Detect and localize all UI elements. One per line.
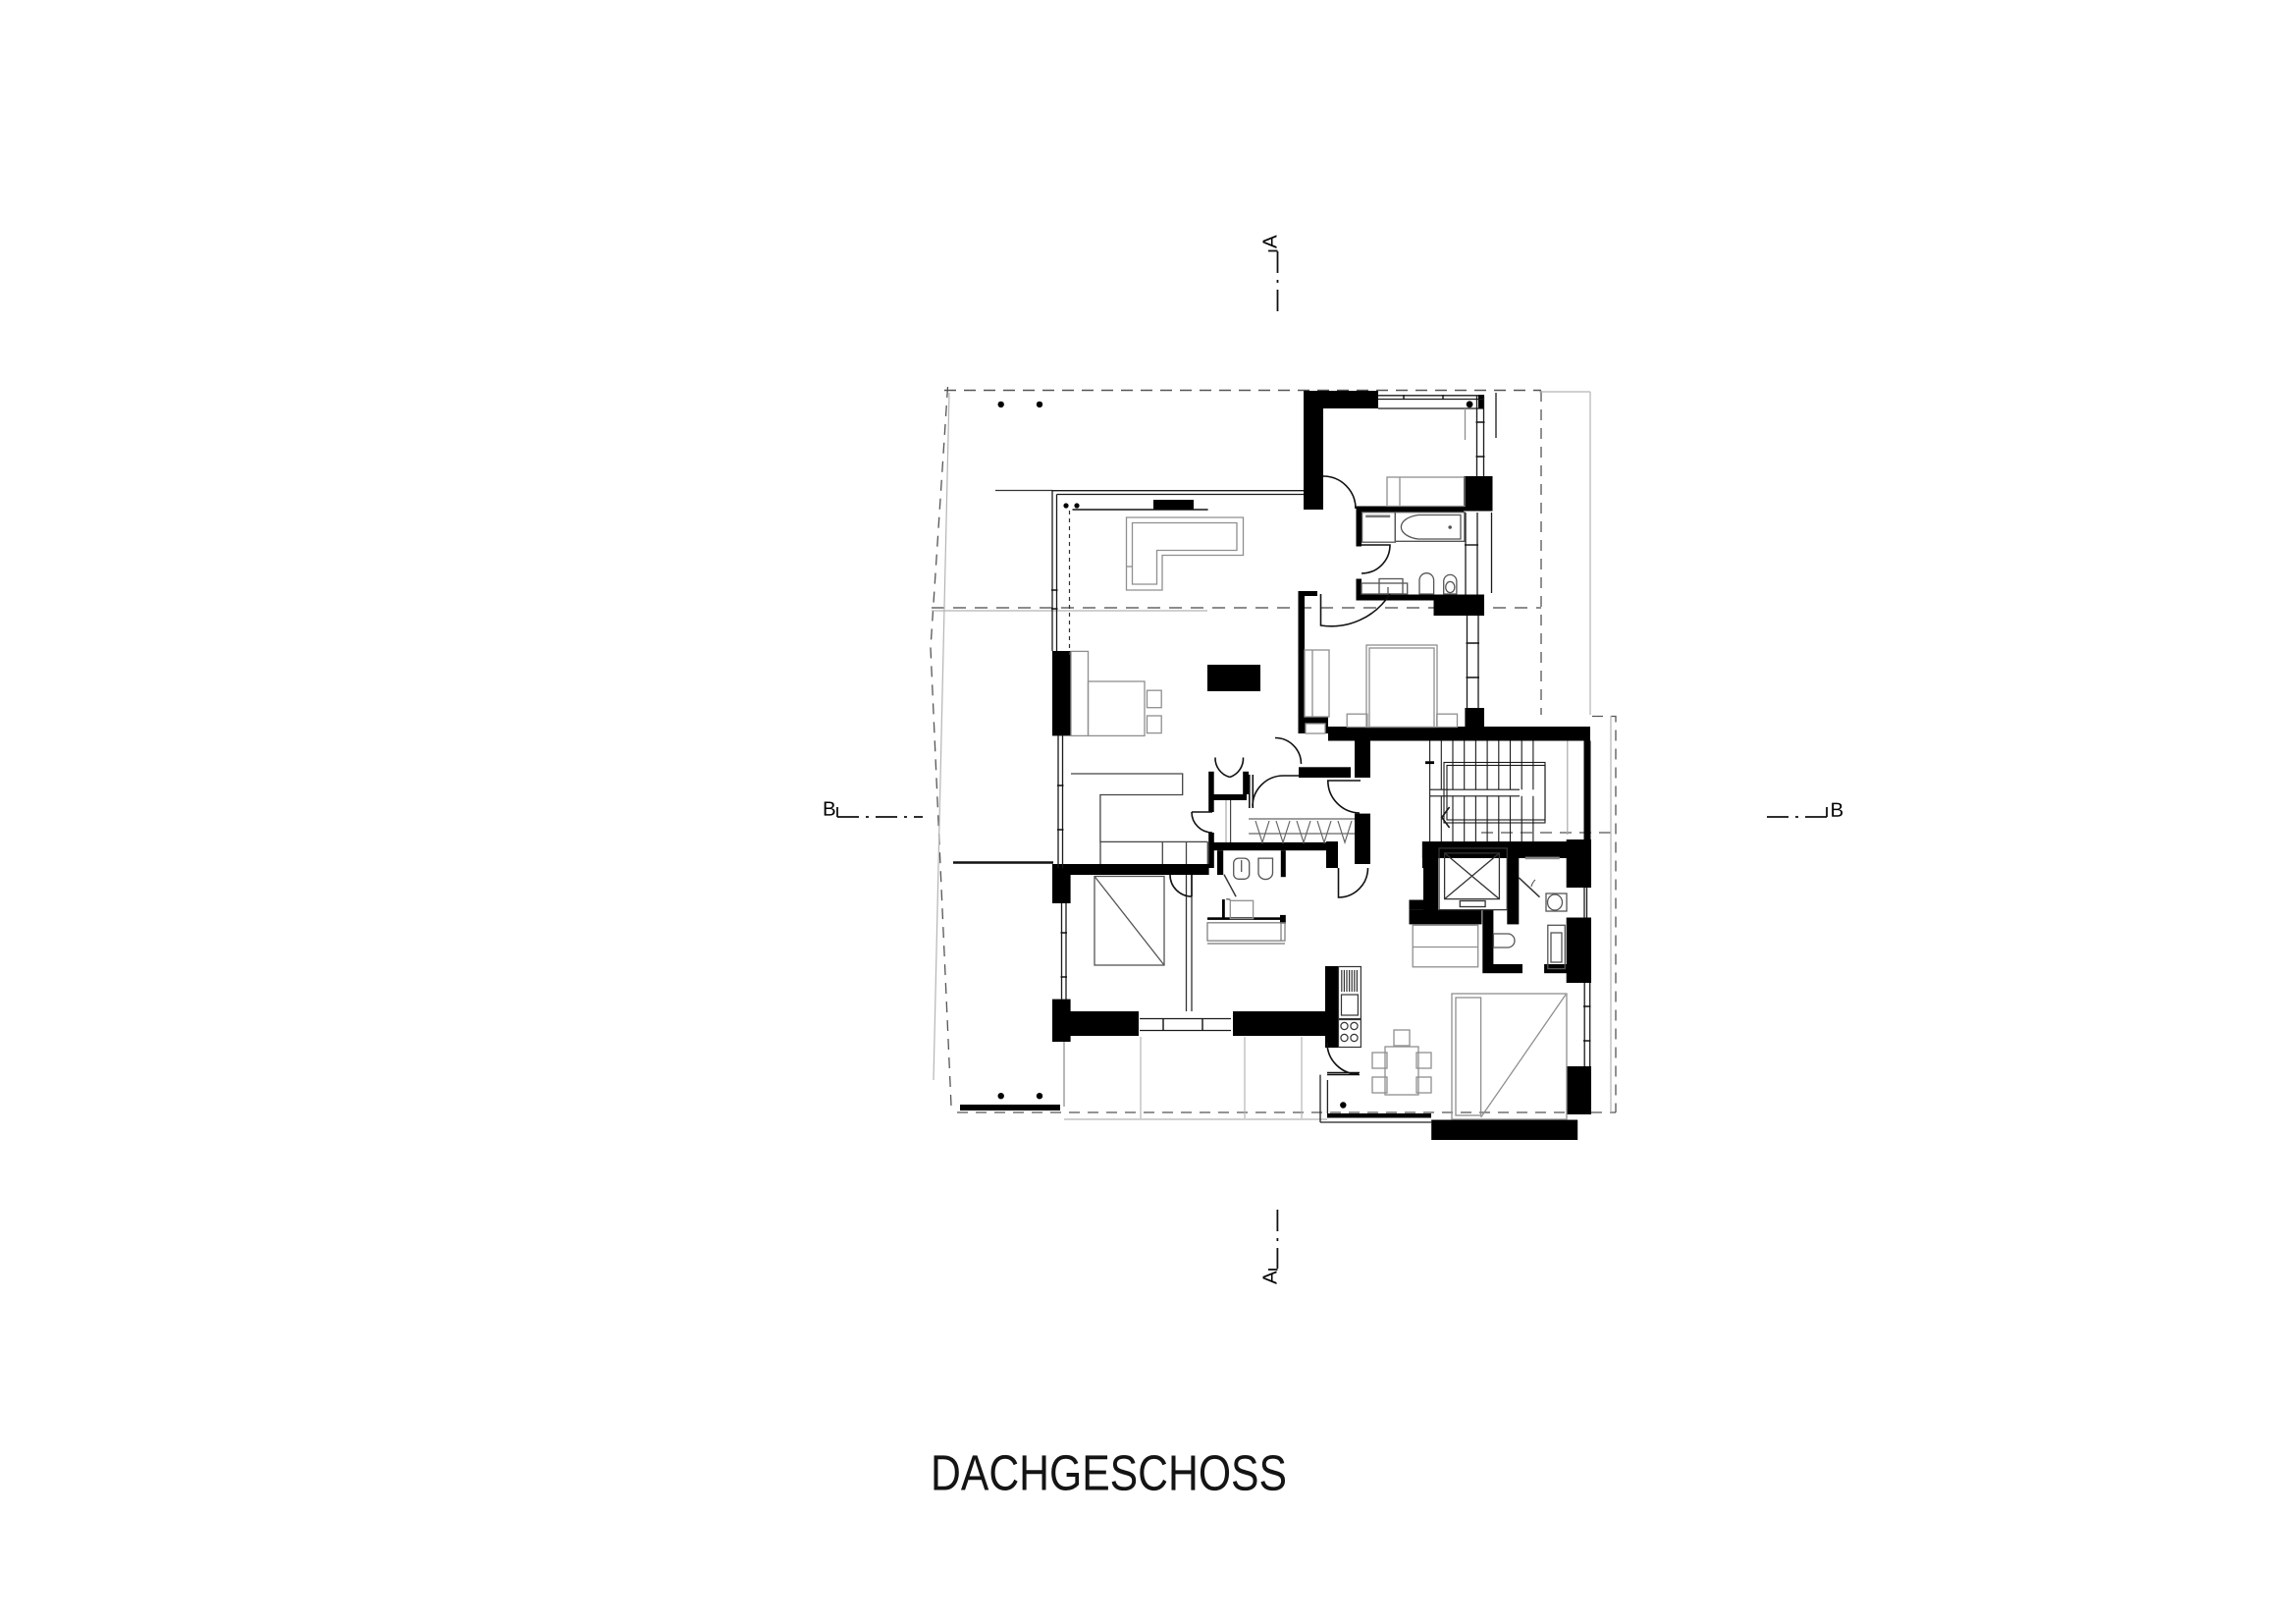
svg-text:A: A (1259, 235, 1282, 248)
svg-text:B: B (1830, 799, 1843, 822)
svg-text:B: B (823, 798, 836, 821)
svg-text:A: A (1259, 1271, 1282, 1284)
svg-text:DACHGESCHOSS: DACHGESCHOSS (931, 1445, 1287, 1501)
